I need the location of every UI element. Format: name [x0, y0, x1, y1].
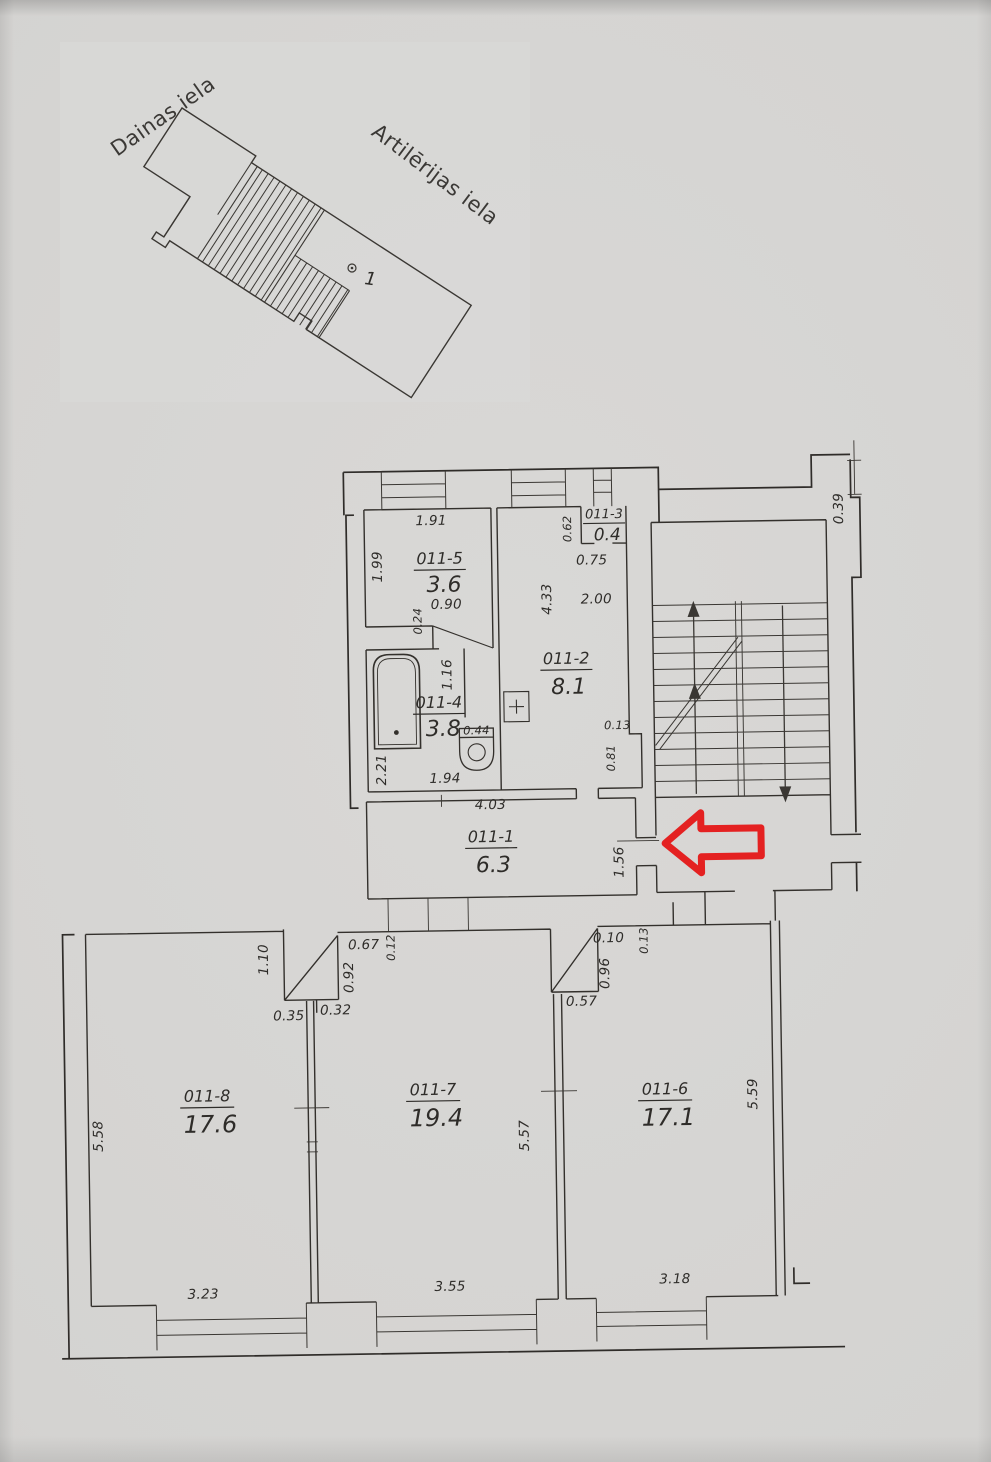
dim-hall-right: 1.56	[611, 846, 627, 878]
dim-door1-top: 0.67	[348, 937, 380, 953]
dim-room2-jog-height: 0.81	[604, 745, 618, 772]
room-code-underline	[583, 523, 625, 524]
room-011-7-label: 011-7 19.4	[406, 1080, 464, 1133]
room-area: 8.1	[551, 675, 586, 701]
stair-down-arrow-shaft	[782, 605, 785, 790]
room-code-underline	[413, 713, 465, 714]
dim-room5-left: 1.99	[370, 551, 386, 583]
room-code-underline	[638, 1100, 692, 1101]
dim-room8-bottom: 3.23	[187, 1286, 219, 1302]
room-code-underline	[180, 1107, 234, 1108]
dim-stair-wall: 0.39	[831, 493, 847, 525]
dim-bath-bottom: 1.94	[429, 771, 461, 787]
dim-door1-wall: 0.12	[384, 934, 398, 961]
stair-steps	[652, 600, 830, 798]
stair-up-arrow-head	[687, 601, 699, 617]
interior-walls	[79, 502, 868, 1306]
room-area: 17.6	[184, 1110, 238, 1139]
dim-room7-bottom: 3.55	[434, 1279, 466, 1295]
room-code: 011-6	[642, 1079, 689, 1099]
dim-room2-left: 4.33	[539, 583, 555, 615]
dim-door2-bottom: 0.57	[566, 993, 598, 1009]
dim-door1-bottom: 0.32	[320, 1002, 352, 1018]
room-code: 011-4	[415, 692, 462, 712]
room-area: 6.3	[476, 853, 511, 879]
dim-room3-bottom: 0.75	[576, 552, 608, 568]
dim-room7-right: 5.57	[516, 1120, 532, 1152]
dimension-labels: 1.91 1.99 0.90 0.24 0.62 0.75 4.33 2.00 …	[81, 493, 859, 1305]
apartment-plan: 1.91 1.99 0.90 0.24 0.62 0.75 4.33 2.00 …	[48, 440, 875, 1359]
dim-door1-right: 0.92	[341, 962, 357, 994]
stair-up-arrow-shaft	[694, 613, 697, 794]
dim-door2-wall: 0.13	[636, 927, 650, 954]
door-leaves	[433, 625, 493, 649]
room-code: 011-5	[416, 548, 463, 568]
window-symbols	[143, 467, 707, 1351]
room-011-8-label: 011-8 17.6	[180, 1086, 238, 1139]
room-area: 17.1	[641, 1103, 695, 1132]
room-code: 011-2	[543, 648, 590, 668]
room-011-2-label: 011-2 8.1	[540, 648, 593, 700]
room-area: 0.4	[594, 525, 621, 545]
building-marker-dot	[351, 267, 354, 270]
room-011-1-label: 011-1 6.3	[465, 827, 518, 879]
flue-shaft	[504, 691, 529, 721]
dim-room5-top: 1.91	[415, 513, 447, 529]
room-011-3-label: 011-3 0.4	[583, 507, 626, 546]
room-code: 011-1	[468, 827, 515, 847]
dim-room6-right: 5.59	[745, 1078, 761, 1110]
red-arrow-annotation	[665, 812, 762, 874]
room-area: 3.6	[426, 572, 461, 598]
dim-hall-top: 4.03	[475, 797, 507, 813]
dim-door1-bottom-left: 0.35	[273, 1008, 305, 1024]
toilet-bowl	[468, 744, 485, 761]
floor-plan-drawing: 1 Dainas iela Artilērijas iela	[0, 0, 991, 1462]
dim-room3-left: 0.62	[560, 516, 574, 543]
room-code-underline	[406, 1101, 460, 1102]
dim-room6-bottom: 3.18	[659, 1271, 691, 1287]
dim-room2-jog-width: 0.13	[604, 718, 631, 732]
dim-room8-left: 5.58	[90, 1120, 106, 1152]
room-011-5-label: 011-5 3.6	[413, 548, 466, 598]
room-code: 011-7	[410, 1080, 458, 1100]
dim-bath-left: 2.21	[374, 754, 390, 786]
dim-bath-partition: 1.16	[439, 659, 455, 691]
scanned-floor-plan-page: 1 Dainas iela Artilērijas iela	[0, 0, 991, 1462]
dim-door1-left: 1.10	[256, 944, 272, 976]
staircase	[652, 599, 830, 805]
room-area: 19.4	[409, 1104, 463, 1133]
bathtub-drain	[394, 730, 399, 735]
dim-room2-width: 2.00	[581, 591, 613, 607]
room-code: 011-8	[184, 1086, 231, 1106]
room-code: 011-3	[585, 507, 623, 523]
room-area: 3.8	[426, 717, 461, 743]
dim-room5-door: 0.90	[431, 596, 463, 612]
stair-down-arrow-head	[779, 786, 791, 802]
room-code-underline	[540, 669, 592, 670]
room-011-6-label: 011-6 17.1	[638, 1079, 696, 1132]
room-code-underline	[465, 848, 517, 849]
dim-toilet: 0.44	[463, 723, 490, 737]
dim-door2-right: 0.96	[597, 958, 613, 990]
dim-wall-left: 0.24	[410, 608, 424, 635]
dim-door2-top: 0.10	[593, 930, 625, 946]
room-code-underline	[414, 569, 466, 570]
